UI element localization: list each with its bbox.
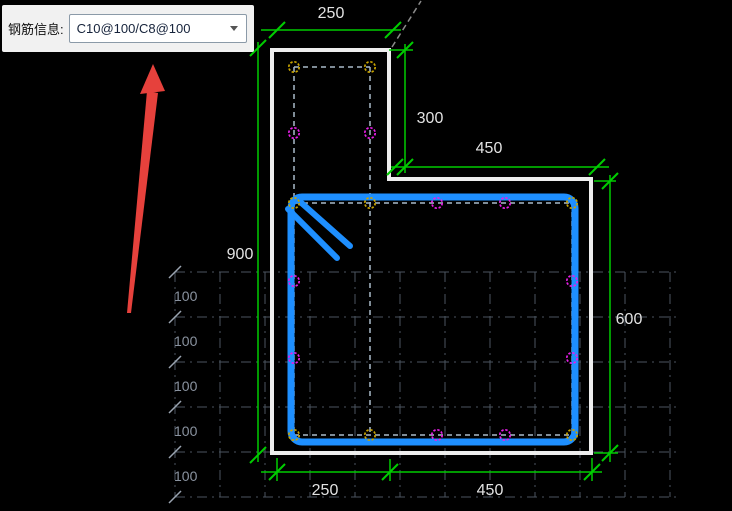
dim-right-height: 600 (616, 311, 643, 328)
side-bar-markers[interactable] (289, 128, 577, 440)
spacing-label: 100 (174, 378, 198, 394)
dimension-lines (258, 30, 618, 481)
leader-dash-line (392, 1, 421, 47)
rebar-info-combobox[interactable]: C10@100/C8@100 (69, 14, 247, 43)
dim-upper-width: 450 (476, 140, 503, 157)
dim-top-width: 250 (318, 5, 345, 22)
cad-canvas: 100 100 100 100 100 (0, 0, 732, 511)
spacing-label: 100 (174, 423, 198, 439)
dim-bottom-body: 450 (477, 482, 504, 499)
spacing-label: 100 (174, 288, 198, 304)
spacing-label: 100 (174, 468, 198, 484)
dim-flange-height: 300 (417, 110, 444, 127)
spacing-label: 100 (174, 333, 198, 349)
dim-total-height: 900 (227, 246, 254, 263)
chevron-down-icon[interactable] (230, 26, 238, 31)
rebar-info-value: C10@100/C8@100 (77, 21, 191, 36)
dimension-ticks (250, 22, 618, 480)
dim-bottom-flange: 250 (312, 482, 339, 499)
section-drawing: 100 100 100 100 100 (0, 0, 732, 511)
rebar-info-toolbar: 钢筋信息: C10@100/C8@100 (2, 5, 254, 52)
rebar-info-label: 钢筋信息: (8, 19, 64, 38)
annotation-arrow (127, 64, 165, 313)
